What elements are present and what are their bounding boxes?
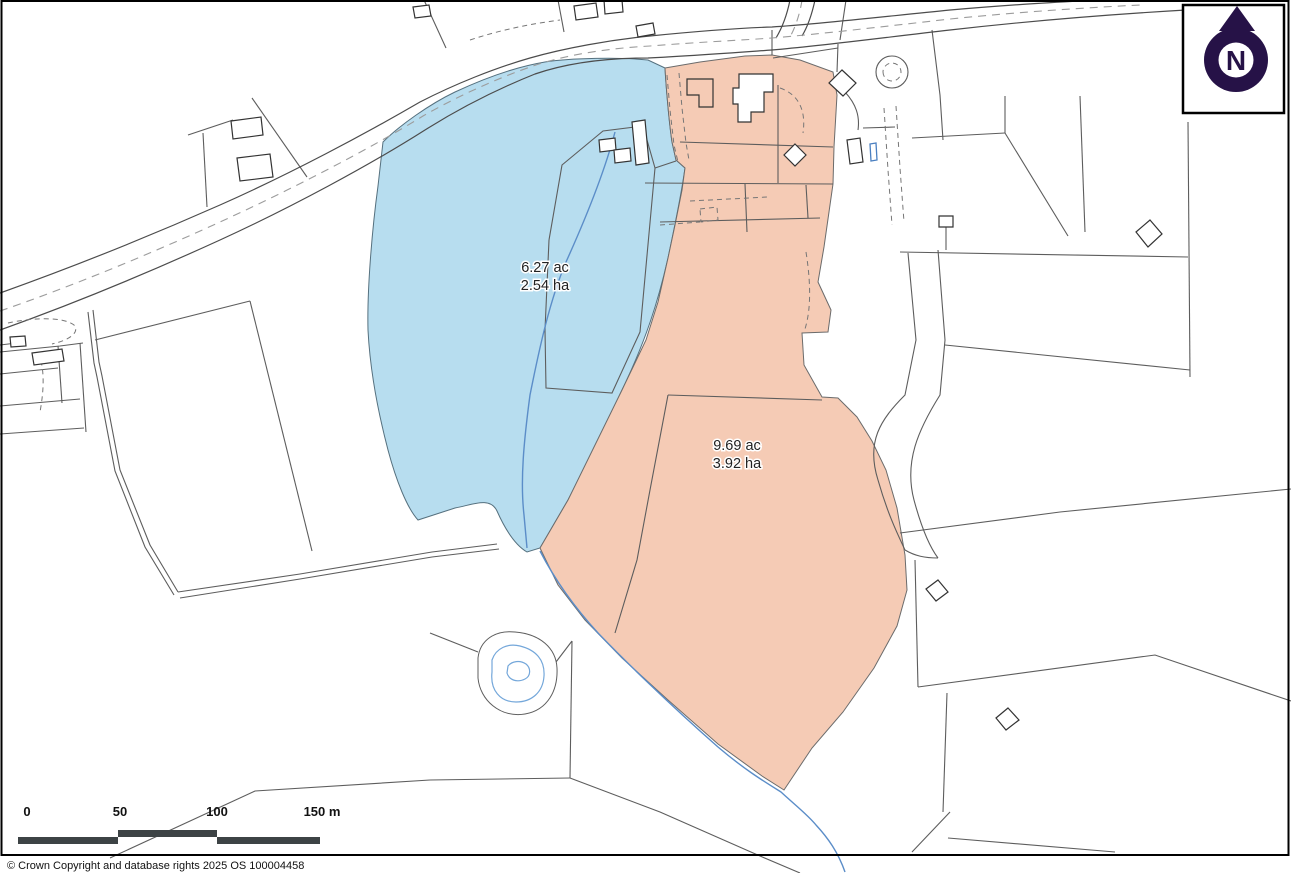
pink-parcel-hectares: 3.92 ha — [713, 456, 762, 472]
map-drawing: 6.27 ac 2.54 ha 9.69 ac 3.92 ha 0 50 100… — [0, 0, 1291, 873]
scale-label-50: 50 — [113, 804, 127, 819]
blue-parcel-hectares: 2.54 ha — [521, 278, 570, 294]
copyright-text: © Crown Copyright and database rights 20… — [7, 860, 304, 872]
scale-label-100: 100 — [206, 804, 228, 819]
layer-tank — [870, 143, 877, 161]
north-letter: N — [1226, 45, 1246, 76]
os-parcel-map: 6.27 ac 2.54 ha 9.69 ac 3.92 ha 0 50 100… — [0, 0, 1291, 873]
scale-bar: 0 50 100 150 m — [18, 804, 340, 844]
scale-segment-3 — [217, 837, 320, 844]
map-layers — [0, 0, 1291, 873]
scale-segment-1 — [18, 837, 118, 844]
scale-label-150m: 150 m — [304, 804, 341, 819]
blue-parcel-acres: 6.27 ac — [521, 260, 569, 276]
scale-segment-2 — [118, 830, 217, 837]
scale-label-0: 0 — [23, 804, 30, 819]
pink-parcel-acres: 9.69 ac — [713, 438, 761, 454]
north-arrow: N — [1183, 5, 1284, 113]
